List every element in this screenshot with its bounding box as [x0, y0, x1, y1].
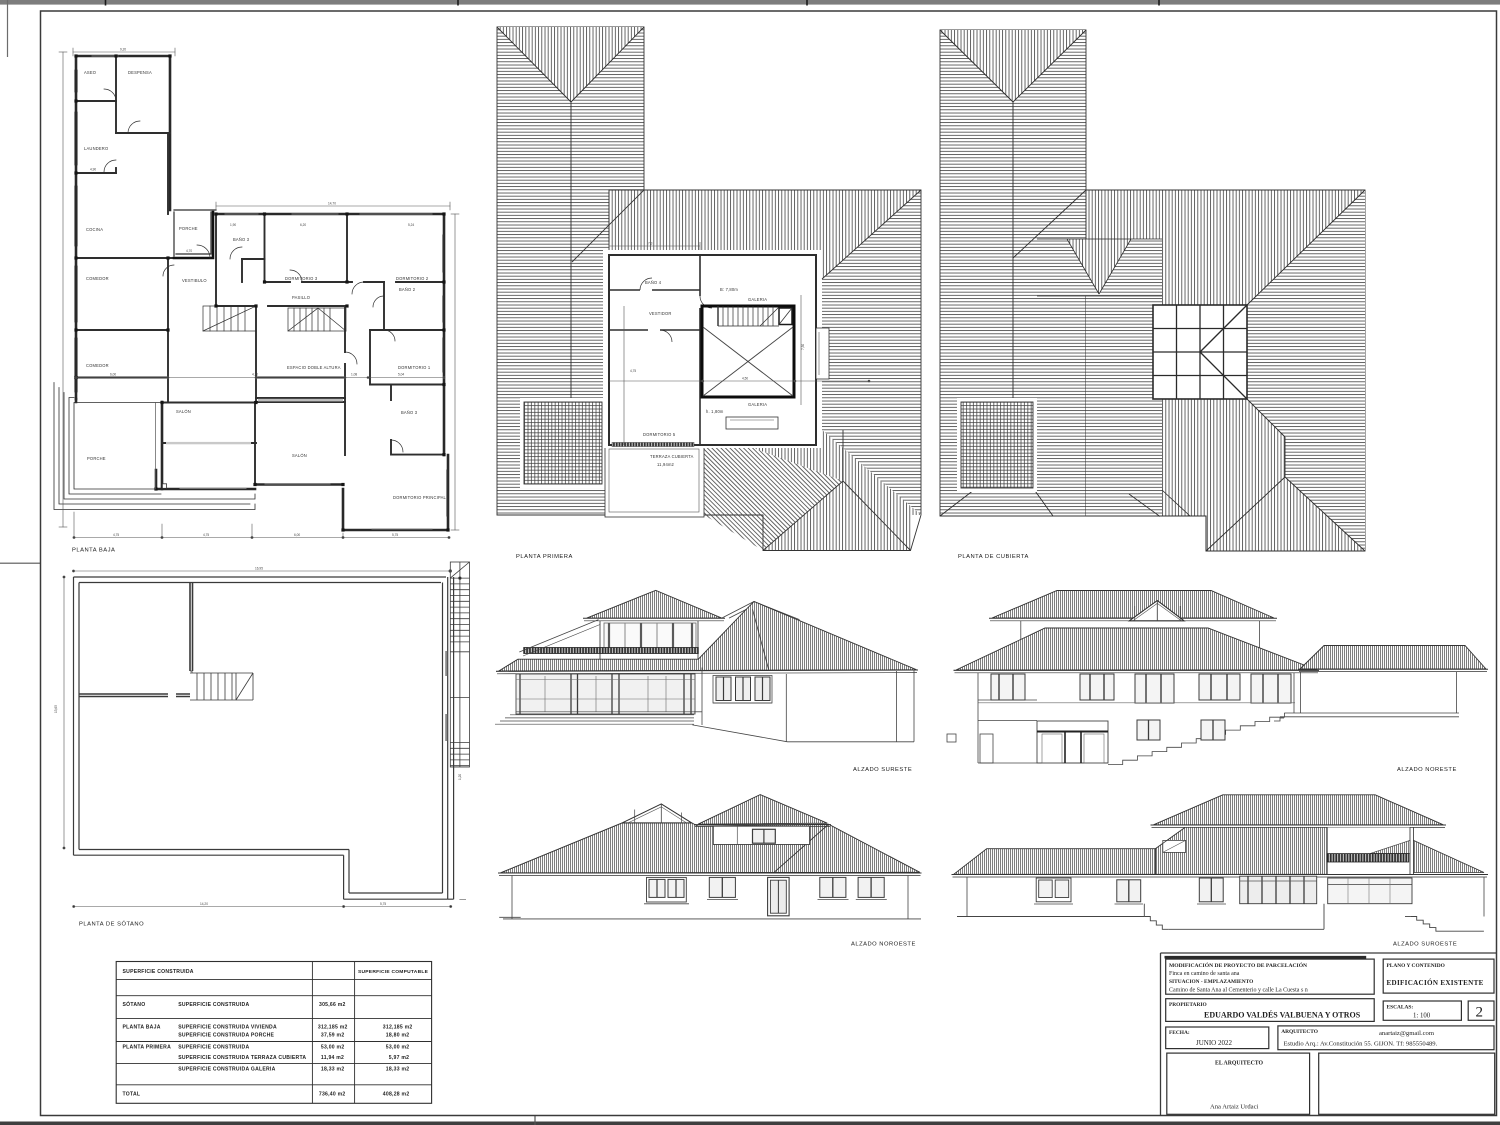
svg-text:EDIFICACIÓN EXISTENTE: EDIFICACIÓN EXISTENTE: [1387, 979, 1484, 987]
svg-text:BAÑO 3: BAÑO 3: [401, 410, 418, 415]
svg-text:TOTAL: TOTAL: [123, 1092, 141, 1098]
svg-text:5,97 m2: 5,97 m2: [389, 1055, 409, 1061]
svg-text:EL ARQUITECTO: EL ARQUITECTO: [1215, 1060, 1264, 1066]
svg-text:7,3: 7,3: [648, 242, 653, 246]
svg-text:6,00: 6,00: [110, 373, 116, 377]
svg-text:18,33 m2: 18,33 m2: [321, 1066, 345, 1072]
svg-text:ALZADO SURESTE: ALZADO SURESTE: [853, 767, 912, 773]
svg-text:312,185 m2: 312,185 m2: [318, 1024, 348, 1030]
svg-text:4,90: 4,90: [90, 168, 96, 172]
svg-text:53,00 m2: 53,00 m2: [321, 1045, 345, 1051]
svg-text:2: 2: [1476, 1005, 1484, 1021]
svg-text:PROPIETARIO: PROPIETARIO: [1169, 1002, 1207, 1008]
svg-text:JUNIO 2022: JUNIO 2022: [1196, 1039, 1232, 1047]
svg-text:DORMITORIO 5: DORMITORIO 5: [643, 432, 676, 437]
svg-text:1,90: 1,90: [230, 223, 236, 227]
svg-text:PLANTA BAJA: PLANTA BAJA: [123, 1024, 161, 1030]
svg-text:18,80 m2: 18,80 m2: [386, 1033, 410, 1039]
svg-text:EDUARDO VALDÉS VALBUENA Y OTRO: EDUARDO VALDÉS VALBUENA Y OTROS: [1204, 1010, 1361, 1020]
svg-text:FECHA:: FECHA:: [1169, 1030, 1190, 1036]
svg-text:6,20: 6,20: [300, 223, 306, 227]
svg-text:SITUACION - EMPLAZAMIENTO: SITUACION - EMPLAZAMIENTO: [1169, 979, 1253, 985]
svg-text:DORMITORIO PRINCIPAL: DORMITORIO PRINCIPAL: [393, 495, 447, 500]
svg-text:TERRAZA CUBIERTA: TERRAZA CUBIERTA: [650, 454, 694, 459]
svg-text:Ana Artaiz Urdaci: Ana Artaiz Urdaci: [1210, 1104, 1259, 1111]
svg-text:BAÑO 2: BAÑO 2: [399, 287, 416, 292]
svg-text:408,28 m2: 408,28 m2: [383, 1092, 410, 1098]
svg-text:SALÓN: SALÓN: [292, 453, 307, 458]
svg-text:PLANO Y CONTENIDO: PLANO Y CONTENIDO: [1387, 963, 1445, 969]
svg-text:SUPERFICIE CONSTRUIDA TERRAZA: SUPERFICIE CONSTRUIDA TERRAZA CUBIERTA: [178, 1055, 306, 1061]
svg-text:COMEDOR: COMEDOR: [86, 276, 109, 281]
svg-text:ALZADO NORESTE: ALZADO NORESTE: [1397, 767, 1457, 773]
svg-text:5,24: 5,24: [408, 223, 414, 227]
svg-text:VESTIDOR: VESTIDOR: [649, 311, 672, 316]
svg-text:4,75: 4,75: [630, 369, 636, 373]
svg-text:h. 1,80m: h. 1,80m: [706, 409, 724, 414]
svg-text:PLANTA BAJA: PLANTA BAJA: [72, 548, 115, 554]
svg-text:COCINA: COCINA: [86, 227, 103, 232]
svg-text:ARQUITECTO: ARQUITECTO: [1281, 1029, 1318, 1035]
svg-text:ALZADO SUROESTE: ALZADO SUROESTE: [1393, 942, 1457, 948]
svg-text:SUPERFICIE CONSTRUIDA VIVIENDA: SUPERFICIE CONSTRUIDA VIVIENDA: [178, 1024, 277, 1030]
svg-text:PLANTA DE SÓTANO: PLANTA DE SÓTANO: [79, 921, 144, 928]
svg-text:Finca en camino de santa ana: Finca en camino de santa ana: [1169, 971, 1240, 977]
svg-text:SUPERFICIE COMPUTABLE: SUPERFICIE COMPUTABLE: [358, 969, 429, 975]
svg-text:5,75: 5,75: [392, 533, 398, 537]
svg-text:SUPERFICIE CONSTRUIDA GALERIA: SUPERFICIE CONSTRUIDA GALERIA: [178, 1066, 275, 1072]
svg-text:5,04: 5,04: [398, 373, 404, 377]
svg-text:9,20: 9,20: [120, 48, 126, 52]
svg-text:B: 7,80m: B: 7,80m: [720, 287, 738, 292]
svg-text:ASEO: ASEO: [84, 70, 96, 75]
svg-text:4,70: 4,70: [252, 373, 258, 377]
svg-text:11,94 m2: 11,94 m2: [321, 1055, 344, 1061]
svg-text:4,75: 4,75: [113, 533, 119, 537]
svg-text:1: 100: 1: 100: [1413, 1013, 1431, 1020]
svg-text:18,33 m2: 18,33 m2: [386, 1066, 410, 1072]
svg-text:SUPERFICIE CONSTRUIDA PORCHE: SUPERFICIE CONSTRUIDA PORCHE: [178, 1033, 274, 1039]
svg-text:5,75: 5,75: [380, 902, 386, 906]
svg-text:SUPERFICIE CONSTRUIDA: SUPERFICIE CONSTRUIDA: [178, 1045, 249, 1051]
svg-text:ESPACIO DOBLE ALTURA: ESPACIO DOBLE ALTURA: [287, 365, 341, 370]
svg-text:Estudio Arq.: Av.Constitución: Estudio Arq.: Av.Constitución 55. GIJON.…: [1284, 1041, 1438, 1048]
svg-text:MODIFICACIÓN DE PROYECTO DE PA: MODIFICACIÓN DE PROYECTO DE PARCELACIÓN: [1169, 961, 1307, 969]
svg-text:GALERIA: GALERIA: [748, 402, 767, 407]
svg-text:SÓTANO: SÓTANO: [123, 1000, 146, 1008]
svg-text:6,00: 6,00: [294, 533, 300, 537]
svg-text:53,00 m2: 53,00 m2: [386, 1045, 410, 1051]
svg-text:anartaiz@gmail.com: anartaiz@gmail.com: [1379, 1030, 1435, 1037]
svg-text:SUPERFICIE CONSTRUIDA: SUPERFICIE CONSTRUIDA: [123, 969, 194, 975]
svg-text:COMEDOR: COMEDOR: [86, 363, 109, 368]
svg-text:7,30: 7,30: [801, 344, 805, 350]
svg-text:Camino de Santa Ana al Cemente: Camino de Santa Ana al Cementerio y call…: [1169, 987, 1308, 993]
svg-text:PORCHE: PORCHE: [87, 456, 106, 461]
svg-text:14,20: 14,20: [200, 902, 208, 906]
svg-text:13,65: 13,65: [54, 705, 58, 713]
svg-text:PORCHE: PORCHE: [179, 226, 198, 231]
svg-text:PASILLO: PASILLO: [292, 295, 310, 300]
svg-text:16,95: 16,95: [255, 567, 263, 571]
svg-text:DORMITORIO 1: DORMITORIO 1: [398, 365, 431, 370]
svg-text:4,75: 4,75: [203, 533, 209, 537]
svg-text:BAÑO 3: BAÑO 3: [233, 237, 250, 242]
svg-text:4,50: 4,50: [742, 377, 748, 381]
svg-text:14,70: 14,70: [328, 202, 336, 206]
svg-text:PLANTA PRIMERA: PLANTA PRIMERA: [123, 1045, 172, 1051]
svg-text:312,185 m2: 312,185 m2: [383, 1024, 413, 1030]
svg-text:SALÓN: SALÓN: [176, 409, 191, 414]
svg-text:PLANTA DE CUBIERTA: PLANTA DE CUBIERTA: [958, 554, 1029, 560]
svg-text:ESCALAS:: ESCALAS:: [1387, 1004, 1414, 1010]
svg-text:SUPERFICIE CONSTRUIDA: SUPERFICIE CONSTRUIDA: [178, 1002, 249, 1008]
svg-text:4,70: 4,70: [186, 249, 192, 253]
svg-text:DESPENSA: DESPENSA: [128, 70, 152, 75]
svg-text:PLANTA PRIMERA: PLANTA PRIMERA: [516, 554, 573, 560]
svg-text:DORMITORIO 3: DORMITORIO 3: [285, 276, 318, 281]
svg-text:DORMITORIO 2: DORMITORIO 2: [396, 276, 429, 281]
svg-text:LAUNDERO: LAUNDERO: [84, 146, 108, 151]
svg-text:ALZADO NOROESTE: ALZADO NOROESTE: [851, 942, 916, 948]
svg-text:BAÑO 4: BAÑO 4: [645, 280, 662, 285]
svg-text:1,08: 1,08: [351, 373, 357, 377]
svg-text:VESTIBULO: VESTIBULO: [182, 278, 207, 283]
svg-text:305,66 m2: 305,66 m2: [319, 1002, 346, 1008]
svg-text:1,20: 1,20: [458, 774, 462, 780]
svg-text:GALERIA: GALERIA: [748, 297, 767, 302]
svg-text:736,40 m2: 736,40 m2: [319, 1092, 346, 1098]
svg-text:11,94m2: 11,94m2: [657, 462, 675, 467]
svg-text:37,59 m2: 37,59 m2: [321, 1033, 345, 1039]
